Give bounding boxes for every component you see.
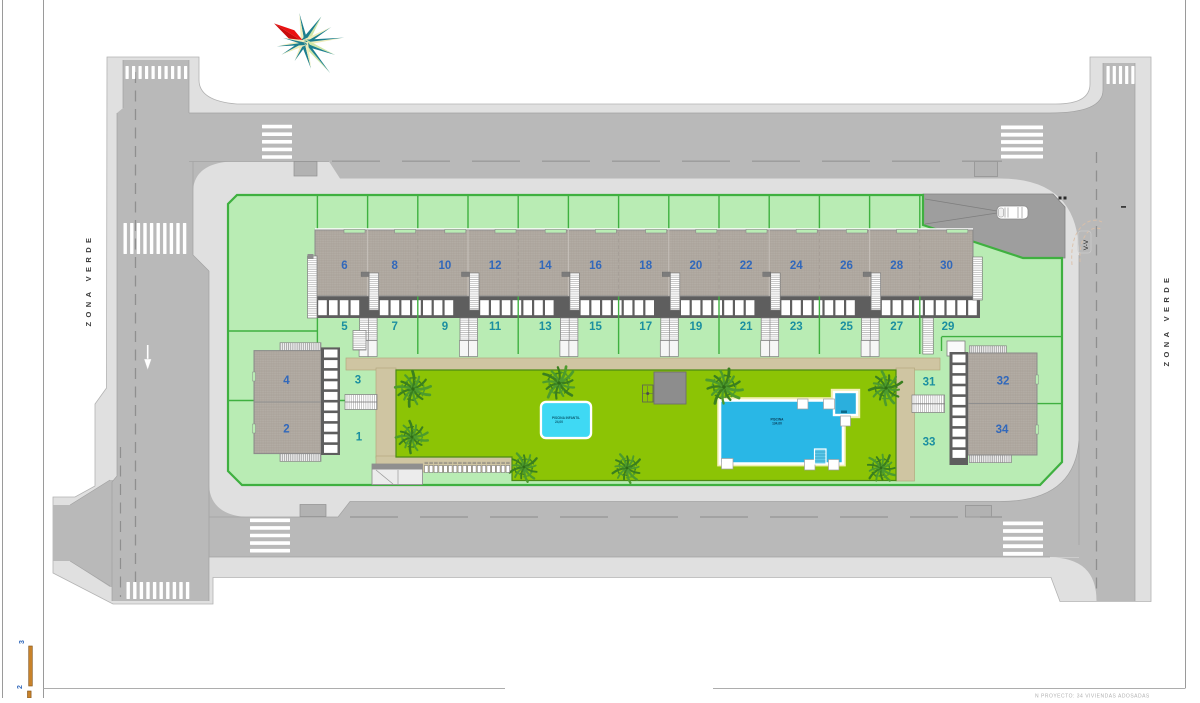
- svg-text:2: 2: [283, 424, 289, 436]
- svg-text:20: 20: [690, 260, 703, 272]
- svg-text:19: 19: [690, 321, 703, 333]
- svg-text:3: 3: [355, 375, 361, 387]
- svg-text:12: 12: [489, 260, 502, 272]
- svg-text:24: 24: [790, 260, 803, 272]
- svg-text:3: 3: [19, 640, 26, 644]
- svg-text:27: 27: [890, 321, 903, 333]
- svg-text:24,00: 24,00: [555, 420, 563, 424]
- svg-text:16: 16: [589, 260, 602, 272]
- svg-text:29: 29: [942, 321, 955, 333]
- svg-text:15: 15: [589, 321, 602, 333]
- svg-text:10: 10: [439, 260, 452, 272]
- svg-text:25: 25: [840, 321, 853, 333]
- svg-text:7: 7: [391, 321, 397, 333]
- svg-text:34: 34: [996, 424, 1009, 436]
- svg-text:22: 22: [740, 260, 753, 272]
- svg-text:9: 9: [442, 321, 448, 333]
- svg-text:18: 18: [639, 260, 652, 272]
- svg-text:33: 33: [923, 437, 936, 449]
- svg-text:6: 6: [341, 260, 347, 272]
- svg-text:11: 11: [489, 321, 502, 333]
- svg-text:ZONA VERDE: ZONA VERDE: [1162, 274, 1171, 367]
- svg-text:V-V: V-V: [1083, 239, 1090, 250]
- svg-text:30: 30: [940, 260, 953, 272]
- svg-text:N PROYECTO: 34 VIVIENDAS ADOSA: N PROYECTO: 34 VIVIENDAS ADOSADAS: [1035, 694, 1150, 699]
- svg-text:13: 13: [539, 321, 552, 333]
- svg-text:32: 32: [997, 376, 1010, 388]
- svg-text:4: 4: [283, 375, 290, 387]
- svg-text:28: 28: [890, 260, 903, 272]
- svg-text:31: 31: [923, 377, 936, 389]
- svg-text:21: 21: [740, 321, 753, 333]
- svg-text:14: 14: [539, 260, 552, 272]
- svg-text:134,00: 134,00: [772, 422, 782, 426]
- svg-text:26: 26: [840, 260, 853, 272]
- svg-text:8: 8: [391, 260, 398, 272]
- svg-text:2: 2: [17, 685, 24, 689]
- svg-text:ZONA VERDE: ZONA VERDE: [84, 234, 93, 327]
- svg-text:23: 23: [790, 321, 803, 333]
- svg-text:17: 17: [639, 321, 652, 333]
- svg-text:5: 5: [341, 321, 348, 333]
- svg-text:1: 1: [356, 432, 363, 444]
